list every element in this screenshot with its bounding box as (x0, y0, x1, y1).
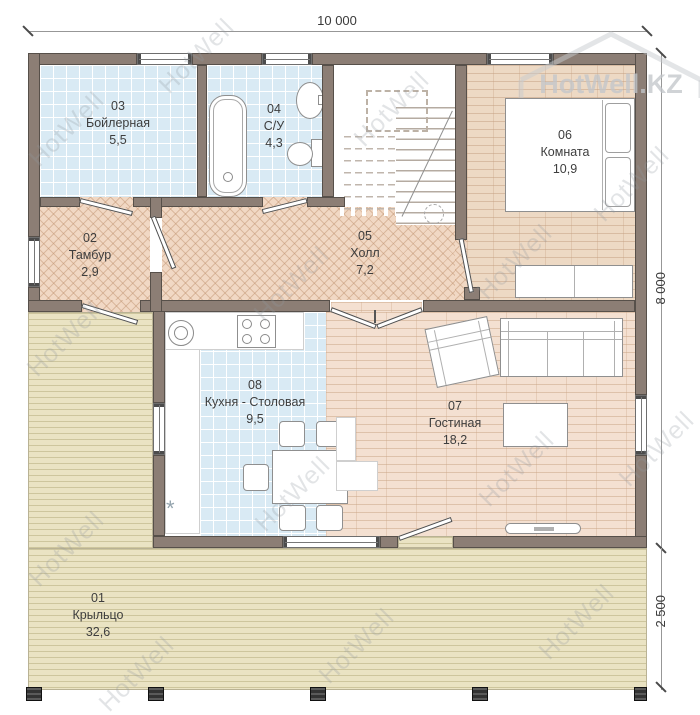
dimension-height: 8 000 (653, 272, 668, 305)
window (262, 53, 312, 65)
dresser-divider (574, 266, 575, 297)
room-name: Кухня - Столовая (205, 394, 305, 411)
burner-icon (242, 334, 252, 344)
room-number: 04 (264, 101, 284, 118)
burner-icon (260, 334, 270, 344)
wall (28, 53, 137, 65)
porch-post (310, 687, 326, 701)
room-label-hall: 05 Холл 7,2 (350, 228, 379, 279)
kitchen-cabinet (336, 417, 356, 461)
room-area: 9,5 (205, 411, 305, 428)
kitchen-sink-inner-icon (174, 326, 188, 340)
wall (150, 197, 162, 218)
sofa-back-line (501, 339, 622, 340)
wall (153, 455, 165, 536)
room-number: 07 (429, 398, 481, 415)
room-label-bedroom: 06 Комната 10,9 (541, 127, 590, 178)
room-name: Крыльцо (73, 607, 124, 624)
wall (307, 197, 345, 207)
room-name: Тамбур (69, 247, 111, 264)
sofa-armrest-line (508, 321, 509, 376)
room-label-bathroom: 04 С/У 4,3 (264, 101, 284, 152)
kitchen-asterisk: * (166, 496, 175, 522)
bathtub-icon (209, 95, 247, 197)
room-label-kitchen: 08 Кухня - Столовая 9,5 (205, 377, 305, 428)
tv-stand-detail (534, 527, 554, 531)
room-label-porch: 01 Крыльцо 32,6 (73, 590, 124, 641)
wall (40, 197, 80, 207)
room-area: 32,6 (73, 624, 124, 641)
dimension-porch: 2 500 (653, 595, 668, 628)
sofa-cushion-divider (547, 331, 548, 376)
dimension-width: 10 000 (317, 13, 357, 28)
room-label-living: 07 Гостиная 18,2 (429, 398, 481, 449)
sofa-armrest-line (614, 321, 615, 376)
room-area: 4,3 (264, 135, 284, 152)
porch-post (26, 687, 42, 701)
room-label-boiler: 03 Бойлерная 5,5 (86, 98, 150, 149)
wall (153, 300, 165, 403)
room-number: 05 (350, 228, 379, 245)
wall (322, 65, 334, 197)
wall (153, 536, 283, 548)
room-number: 03 (86, 98, 150, 115)
wall (635, 53, 647, 395)
sofa-back-line (501, 331, 622, 332)
room-area: 2,9 (69, 264, 111, 281)
window (283, 536, 380, 548)
room-area: 10,9 (541, 161, 590, 178)
floor-patch-double-door (331, 302, 422, 312)
wall (140, 300, 330, 312)
porch-post (472, 687, 488, 701)
room-label-vestibule: 02 Тамбур 2,9 (69, 230, 111, 281)
room-name: Холл (350, 245, 379, 262)
wall (453, 536, 647, 548)
bathtub-drain-icon (223, 172, 233, 182)
chair (243, 464, 269, 491)
stairs-start-circle (424, 204, 444, 224)
room-name: Гостиная (429, 415, 481, 432)
wall (380, 536, 398, 548)
porch-post (148, 687, 164, 701)
tv-stand (505, 523, 581, 534)
floor-plan-canvas: * (0, 0, 700, 715)
room-area: 5,5 (86, 132, 150, 149)
wall (150, 272, 162, 312)
sofa-cushion-divider (583, 331, 584, 376)
double-door-center-tick (374, 310, 376, 323)
room-area: 7,2 (350, 262, 379, 279)
window (28, 237, 40, 287)
wall (455, 65, 467, 240)
sofa (500, 318, 623, 377)
room-name: Комната (541, 144, 590, 161)
window (153, 403, 165, 455)
room-number: 08 (205, 377, 305, 394)
room-area: 18,2 (429, 432, 481, 449)
dresser (515, 265, 633, 298)
room-name: Бойлерная (86, 115, 150, 132)
kitchen-cabinet (336, 461, 378, 491)
toilet-bowl-icon (287, 142, 313, 166)
brand-watermark: HotWell.KZ (515, 14, 700, 102)
brand-text: HotWell.KZ (539, 69, 683, 99)
porch-post (634, 687, 647, 701)
wall (423, 300, 635, 312)
room-name: С/У (264, 118, 284, 135)
room-number: 06 (541, 127, 590, 144)
wall (197, 65, 207, 197)
room-number: 02 (69, 230, 111, 247)
wall (312, 53, 487, 65)
chair (316, 505, 343, 531)
burner-icon (242, 319, 252, 329)
room-number: 01 (73, 590, 124, 607)
pillow (605, 103, 631, 153)
